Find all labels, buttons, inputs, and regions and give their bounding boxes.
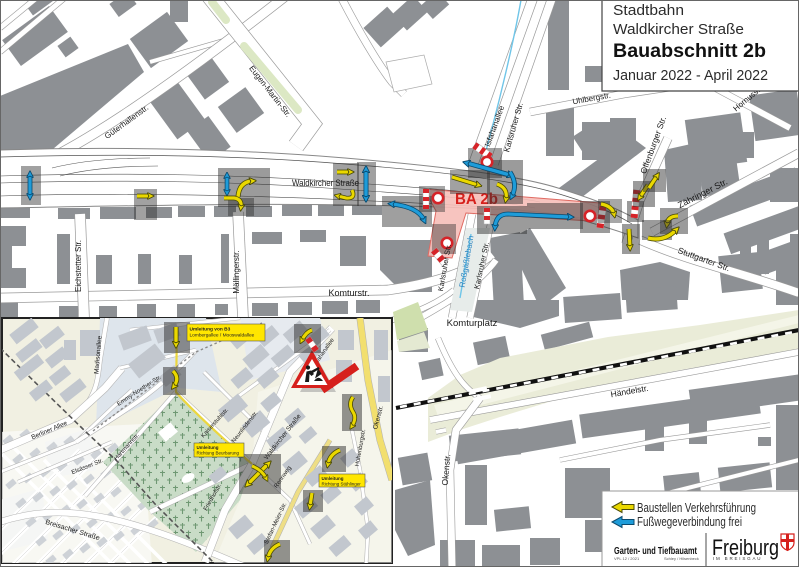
svg-text:Waldkircher Straße: Waldkircher Straße [613,22,744,38]
svg-text:Bauabschnitt 2b: Bauabschnitt 2b [613,41,766,62]
svg-text:Umleitung von B3: Umleitung von B3 [190,326,231,332]
svg-text:Umleitung: Umleitung [197,445,219,450]
svg-text:Fußwegeverbindung frei: Fußwegeverbindung frei [637,514,742,529]
svg-text:VPL 12 / 2021: VPL 12 / 2021 [614,556,640,561]
svg-text:Stadtbahn: Stadtbahn [613,3,684,19]
svg-text:Schley / Hilsenbeck: Schley / Hilsenbeck [664,556,699,561]
svg-text:Eichstetter Str.: Eichstetter Str. [74,240,83,292]
svg-text:Richtung Beurbarung: Richtung Beurbarung [197,451,240,456]
svg-text:Umleitung: Umleitung [322,476,344,481]
svg-text:Komturstr.: Komturstr. [328,288,369,298]
svg-text:Komturplatz: Komturplatz [447,318,498,329]
svg-text:Richtung Stühlinger: Richtung Stühlinger [322,482,362,487]
svg-text:Lombergallee / Mooswaldallee: Lombergallee / Mooswaldallee [190,332,255,338]
svg-text:Januar 2022 - April 2022: Januar 2022 - April 2022 [613,68,768,84]
svg-text:Mällingerstr.: Mällingerstr. [232,250,241,293]
svg-text:Waldkircher Straße: Waldkircher Straße [292,178,359,189]
svg-text:IM BREISGAU: IM BREISGAU [713,556,762,561]
svg-text:Baustellen Verkehrsführung: Baustellen Verkehrsführung [637,500,756,515]
